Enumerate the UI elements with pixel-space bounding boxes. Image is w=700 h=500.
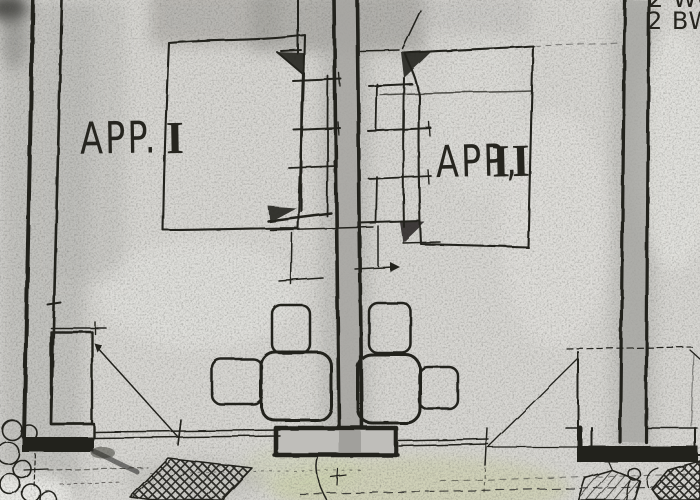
corner-note-line2: 2 BW (647, 7, 700, 35)
apartment1-label-prefix: APP. (80, 113, 159, 165)
apartment2-label: APP, II (435, 135, 532, 189)
floorplan-photo: APP. I APP, II 2 WC 2 BW (0, 0, 700, 500)
apartment1-label-numeral: I (166, 112, 185, 163)
floorplan-sketch: APP. I APP, II 2 WC 2 BW (0, 0, 700, 500)
corner-note: 2 WC 2 BW (647, 0, 700, 35)
apartment1-label: APP. I (80, 112, 185, 165)
apartment2-label-numeral: II (491, 135, 532, 187)
